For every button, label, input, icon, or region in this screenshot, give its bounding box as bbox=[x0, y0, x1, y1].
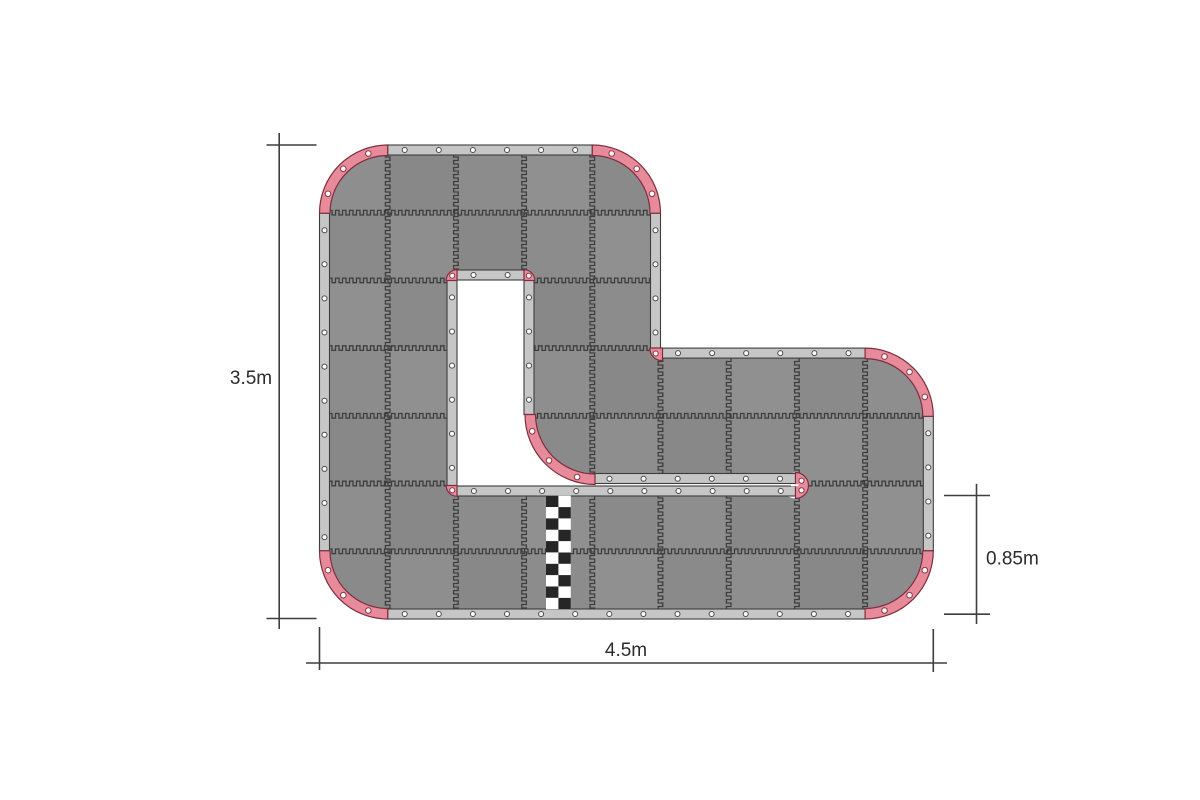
svg-text:3.5m: 3.5m bbox=[230, 368, 272, 389]
svg-text:4.5m: 4.5m bbox=[605, 640, 647, 661]
svg-text:0.85m: 0.85m bbox=[986, 549, 1039, 570]
